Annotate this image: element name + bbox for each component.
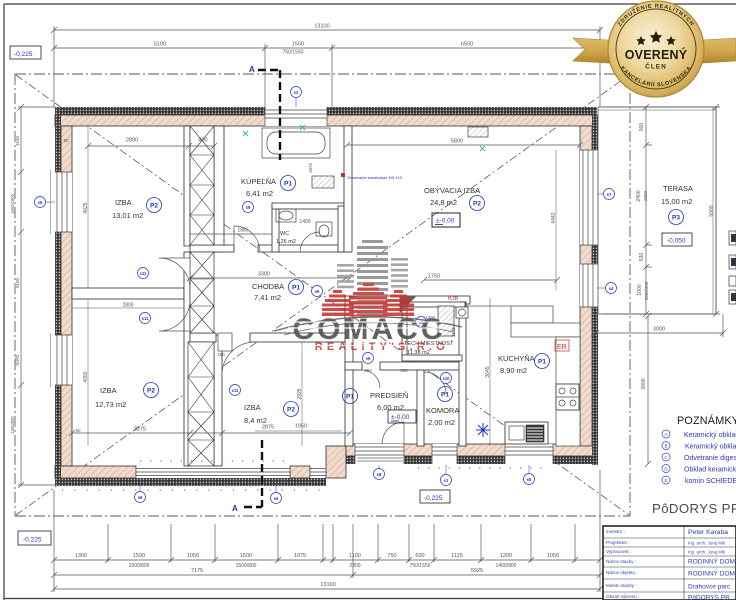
svg-text:5100: 5100 (154, 42, 166, 48)
svg-text:RODINNÝ DOM: RODINNÝ DOM (688, 557, 735, 566)
svg-text:1500/800: 1500/800 (10, 416, 15, 434)
svg-text:P3: P3 (672, 215, 680, 222)
svg-text:1500/800: 1500/800 (129, 563, 150, 569)
svg-text:Krb: Krb (448, 295, 459, 302)
svg-text:5045: 5045 (15, 354, 21, 365)
svg-text:komín SCHIEDEL: komín SCHIEDEL (685, 478, 736, 485)
svg-text:24,8 m2: 24,8 m2 (430, 198, 457, 207)
svg-text:PôDORYS PRÍZE: PôDORYS PRÍZE (652, 501, 736, 516)
svg-text:4025: 4025 (83, 202, 89, 213)
svg-text:1100: 1100 (349, 553, 361, 559)
svg-text:s9: s9 (366, 356, 371, 361)
svg-text:1750: 1750 (428, 274, 440, 280)
svg-text:5000: 5000 (709, 205, 715, 216)
svg-text:2400: 2400 (636, 190, 642, 201)
svg-text:1000: 1000 (637, 284, 643, 295)
svg-text:-0,225: -0,225 (23, 537, 42, 544)
svg-text:2300: 2300 (349, 563, 360, 569)
svg-text:KOMORA: KOMORA (426, 406, 459, 415)
svg-text:Odvetranie digest: Odvetranie digest (684, 455, 736, 462)
svg-text:-0,225: -0,225 (14, 51, 33, 58)
svg-text:s5: s5 (527, 477, 532, 482)
svg-text:1075: 1075 (294, 553, 306, 559)
svg-text:s9: s9 (315, 289, 320, 294)
svg-text:CHODBA: CHODBA (252, 282, 284, 291)
svg-text:1500: 1500 (292, 42, 304, 48)
svg-text:7175: 7175 (191, 568, 203, 574)
svg-text:15,00 m2: 15,00 m2 (661, 197, 692, 206)
svg-text:6500: 6500 (461, 42, 473, 48)
svg-text:PREDSIEŇ: PREDSIEŇ (370, 391, 408, 400)
svg-text:1500/1800: 1500/1800 (10, 193, 15, 213)
svg-text:Keramický obklad: Keramický obklad (684, 432, 736, 439)
svg-text:2925: 2925 (297, 388, 303, 399)
svg-text:IZBA: IZBA (100, 386, 117, 395)
svg-text:6,00 m2: 6,00 m2 (377, 403, 404, 412)
svg-text:ČLEN: ČLEN (645, 62, 667, 71)
svg-text:450: 450 (364, 368, 372, 373)
svg-text:±-0,00: ±-0,00 (436, 218, 455, 225)
svg-text:7,41 m2: 7,41 m2 (254, 293, 281, 302)
svg-text:Obklad keramick: Obklad keramick (684, 467, 736, 474)
svg-text:9100: 9100 (15, 277, 20, 288)
svg-text:-0,050: -0,050 (667, 238, 686, 245)
svg-text:s10: s10 (443, 376, 451, 381)
svg-text:P2: P2 (473, 201, 481, 208)
svg-text:13100: 13100 (314, 24, 329, 30)
svg-text:Ing. arch. Juraj Mik: Ing. arch. Juraj Mik (688, 541, 726, 546)
svg-text:2300: 2300 (643, 190, 648, 201)
svg-text:50: 50 (75, 428, 81, 433)
svg-text:1050: 1050 (547, 553, 559, 559)
svg-text:1050: 1050 (187, 553, 199, 559)
svg-text:Projektant :: Projektant : (606, 540, 629, 545)
svg-text:P1: P1 (346, 394, 354, 401)
svg-text:3645: 3645 (485, 366, 491, 377)
svg-text:P1: P1 (292, 285, 300, 292)
svg-text:P1: P1 (538, 359, 546, 366)
svg-text:A: A (664, 432, 667, 437)
svg-text:A: A (249, 65, 255, 74)
svg-text:450: 450 (217, 352, 225, 357)
svg-text:1300: 1300 (75, 553, 87, 559)
svg-text:2800: 2800 (122, 303, 133, 309)
svg-text:B: B (664, 444, 667, 449)
svg-text:Názov stavby :: Názov stavby : (606, 559, 636, 564)
svg-text:IZBA: IZBA (115, 198, 132, 207)
svg-text:Peter Karaba: Peter Karaba (688, 529, 728, 536)
svg-text:13100: 13100 (320, 582, 335, 588)
svg-text:750/1550: 750/1550 (283, 50, 304, 56)
svg-text:s1: s1 (444, 478, 449, 483)
svg-text:12,73 m2: 12,73 m2 (95, 400, 126, 409)
svg-text:1545: 1545 (15, 135, 20, 146)
svg-text:750: 750 (387, 553, 396, 559)
svg-text:PôDORYS PR: PôDORYS PR (688, 595, 730, 600)
svg-text:4050: 4050 (83, 371, 89, 382)
svg-text:KÚPEĽŇA: KÚPEĽŇA (241, 177, 276, 186)
svg-text:2000/300: 2000/300 (644, 281, 649, 300)
svg-text:2800: 2800 (126, 138, 138, 144)
svg-text:A: A (232, 504, 238, 513)
svg-text:REALiTY'S.R.O: REALiTY'S.R.O (315, 341, 449, 353)
svg-text:2875: 2875 (262, 425, 274, 431)
svg-text:IZBA: IZBA (244, 403, 261, 412)
svg-text:1875: 1875 (308, 162, 313, 173)
svg-text:6,41 m2: 6,41 m2 (246, 189, 273, 198)
svg-text:±-0,00: ±-0,00 (391, 414, 410, 421)
svg-text:Investor :: Investor : (606, 529, 625, 534)
svg-text:s11: s11 (140, 271, 147, 276)
svg-text:900: 900 (639, 123, 645, 132)
svg-text:1500: 1500 (133, 553, 145, 559)
svg-text:POZNÁMKY: POZNÁMKY (677, 414, 736, 427)
svg-text:3300: 3300 (258, 272, 270, 278)
svg-text:8,4 m2: 8,4 m2 (244, 416, 267, 425)
svg-text:750/1550: 750/1550 (410, 563, 431, 569)
svg-text:s2: s2 (294, 90, 299, 95)
svg-text:P1: P1 (441, 392, 449, 399)
svg-text:WC: WC (280, 231, 289, 237)
svg-text:Keramický obklad: Keramický obklad (685, 444, 736, 451)
svg-text:1885: 1885 (237, 228, 248, 234)
svg-text:1400/900: 1400/900 (496, 563, 517, 569)
svg-text:1500: 1500 (240, 553, 252, 559)
svg-text:P2: P2 (147, 388, 155, 395)
svg-text:ER: ER (557, 344, 567, 351)
svg-text:s11: s11 (142, 316, 149, 321)
svg-text:s6: s6 (274, 496, 279, 501)
svg-text:E: E (664, 478, 667, 483)
svg-text:3800: 3800 (641, 378, 647, 389)
svg-text:4442: 4442 (551, 212, 557, 223)
svg-text:1400: 1400 (299, 219, 310, 225)
svg-text:s6: s6 (38, 200, 43, 205)
svg-text:3275: 3275 (134, 427, 146, 433)
svg-text:600: 600 (198, 138, 207, 144)
svg-text:5800: 5800 (451, 139, 463, 145)
svg-text:Obsah výkresu :: Obsah výkresu : (606, 594, 639, 599)
svg-text:500: 500 (400, 368, 408, 373)
svg-text:1200: 1200 (500, 553, 512, 559)
svg-text:50: 50 (63, 138, 69, 143)
svg-text:1,26 m2: 1,26 m2 (276, 239, 296, 245)
svg-text:Ing. arch. Juraj Mik: Ing. arch. Juraj Mik (688, 550, 726, 555)
svg-text:P1: P1 (284, 181, 292, 188)
svg-text:P2: P2 (287, 407, 295, 414)
svg-text:600: 600 (415, 553, 424, 559)
svg-text:Miesto stavby :: Miesto stavby : (606, 583, 637, 588)
svg-text:Názov objektu :: Názov objektu : (606, 570, 638, 575)
svg-text:Vypracoval :: Vypracoval : (606, 549, 631, 554)
svg-text:2,00 m2: 2,00 m2 (428, 418, 455, 427)
svg-text:RODINNÝ DOM: RODINNÝ DOM (688, 569, 735, 578)
svg-text:Drahovce parc: Drahovce parc (688, 584, 731, 591)
svg-text:s8: s8 (377, 472, 382, 477)
svg-text:s6: s6 (138, 495, 143, 500)
svg-text:8,90 m2: 8,90 m2 (500, 366, 527, 375)
svg-text:Odvetranie kanalizácie DN 110: Odvetranie kanalizácie DN 110 (347, 175, 403, 180)
svg-text:3000: 3000 (653, 327, 665, 333)
svg-text:1950: 1950 (295, 424, 307, 430)
svg-text:OVERENÝ: OVERENÝ (625, 47, 688, 62)
svg-text:-0,225: -0,225 (424, 495, 443, 502)
svg-text:5925: 5925 (471, 568, 483, 574)
svg-text:s11: s11 (232, 388, 239, 393)
svg-text:s4: s4 (609, 286, 614, 291)
svg-text:1125: 1125 (451, 553, 463, 559)
svg-text:s9: s9 (246, 205, 251, 210)
svg-text:13,01 m2: 13,01 m2 (112, 211, 143, 220)
svg-text:s7: s7 (607, 192, 612, 197)
svg-text:TERASA: TERASA (663, 184, 693, 193)
svg-text:530: 530 (639, 253, 645, 262)
svg-text:1500/800: 1500/800 (236, 563, 257, 569)
svg-text:OBÝVACIA IZBA: OBÝVACIA IZBA (424, 186, 480, 195)
svg-text:P2: P2 (150, 203, 158, 210)
svg-text:KUCHYŇA: KUCHYŇA (498, 354, 535, 363)
